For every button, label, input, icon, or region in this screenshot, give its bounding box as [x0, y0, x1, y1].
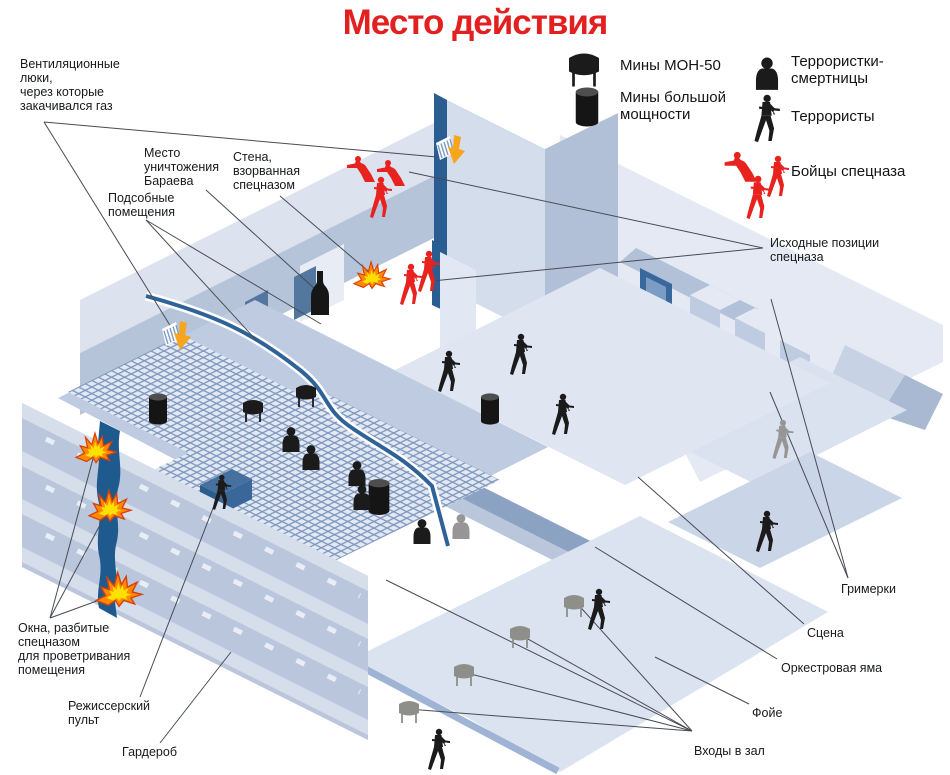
legend-spetsnaz-icon [747, 176, 770, 219]
legend-label-terrorist: Террористы [791, 108, 875, 125]
terrorist-icon [428, 729, 450, 770]
spetsnaz-icon [400, 264, 422, 305]
infographic-root: Место действия Вентиляционные люки, чере… [0, 0, 950, 775]
annotation-label-blown-wall: Стена, взорванная спецназом [233, 150, 300, 192]
annotation-label-hall-entrances: Входы в зал [694, 744, 765, 758]
annotation-label-stage-label: Сцена [807, 626, 844, 640]
annotation-label-dressing-rooms: Гримерки [841, 582, 896, 596]
legend-spetsnaz-icon [725, 152, 757, 182]
legend-female-bomber-icon [756, 58, 778, 90]
annotation-label-orchestra-pit: Оркестровая яма [781, 661, 882, 675]
annotation-label-broken-windows: Окна, разбитые спецназом для проветриван… [18, 621, 130, 677]
legend-spetsnaz-icon [767, 156, 789, 197]
legend-label-mine-heavy: Мины большой мощности [620, 89, 726, 124]
annotation-label-spetsnaz-positions: Исходные позиции спецназа [770, 236, 879, 264]
annotation-label-foyer-label: Фойе [752, 706, 782, 720]
annotation-label-vent-hatches: Вентиляционные люки, через которые закач… [20, 57, 120, 113]
female-bomber-icon [414, 519, 431, 544]
annotation-label-director-console: Режиссерский пульт [68, 699, 150, 727]
annotation-label-cloakroom: Гардероб [122, 745, 177, 759]
page-title: Место действия [0, 3, 950, 43]
mon50-mine-icon [399, 701, 419, 723]
legend-mine-mon50-icon [569, 54, 599, 87]
heavy-mine-icon [369, 479, 390, 515]
leader-line-cloakroom [160, 652, 231, 743]
heavy-mine-icon [149, 393, 167, 424]
heavy-mine-icon [481, 393, 499, 424]
legend-label-mine-mon50: Мины МОН-50 [620, 57, 721, 74]
annotation-label-utility-rooms: Подсобные помещения [108, 191, 175, 219]
female-bomber-icon [453, 514, 470, 539]
annotation-label-baraev-spot: Место уничтожения Бараева [144, 146, 219, 188]
legend-label-female-bomber: Террористки- смертницы [791, 53, 884, 88]
legend-terrorist-icon [755, 95, 780, 142]
legend-label-spetsnaz: Бойцы спецназа [791, 163, 905, 180]
legend-mine-heavy-icon [576, 88, 599, 127]
